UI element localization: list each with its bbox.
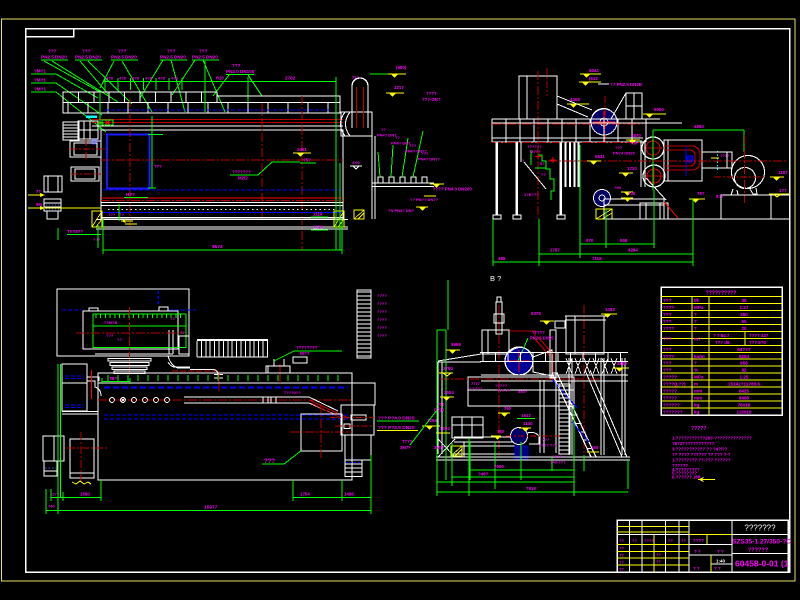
svg-text:?M?1: ?M?1 [34,78,46,83]
svg-text:?? ???? ?????? ?? ??? ?-?: ?? ???? ?????? ?? ??? ?-? [672,452,731,457]
svg-text:9050: 9050 [654,107,664,112]
svg-text:??? d8: ??? d8 [715,340,730,345]
svg-text:4284: 4284 [628,248,638,253]
svg-text:92: 92 [741,368,747,373]
svg-text:1.???????????26?-?????????????: 1.???????????26?-?????????????? [672,436,752,441]
svg-text:mm: mm [694,389,702,394]
svg-text:???: ??? [663,319,672,324]
svg-text:????: ???? [426,91,437,96]
svg-text:1754: 1754 [300,492,310,497]
svg-text:8425: 8425 [739,389,750,394]
svg-text:?: ? [694,312,697,317]
svg-text:4?8: 4?8 [171,76,179,81]
svg-text:5254: 5254 [739,354,750,359]
svg-text:????: ???? [663,326,674,331]
svg-text:?? ???: ?? ??? [469,386,483,391]
svg-text:??: ?? [681,538,686,543]
svg-text:???: ??? [663,298,672,303]
svg-text:??: ?? [656,552,661,557]
svg-text:???: ??? [82,49,91,54]
svg-text:1486: 1486 [344,492,354,497]
svg-text:???: ??? [663,368,672,373]
svg-text:?M?1: ?M?1 [34,87,46,92]
svg-text:PN2.5 DN20: PN2.5 DN20 [75,55,101,60]
svg-text:3.??????????? ?? ?4?/??: 3.??????????? ?? ?4?/?? [672,447,728,452]
svg-text:3217: 3217 [394,85,404,90]
svg-text:1612: 1612 [521,413,531,418]
svg-text:?5?: ?5? [303,158,311,163]
svg-text:76?: 76? [697,191,705,196]
svg-text:mm: mm [694,396,702,401]
svg-text:7?M?B: 7?M?B [104,320,117,325]
svg-text:5042: 5042 [589,68,599,73]
svg-text:1.????????.??-??? ??????: 1.????????.??-??? ?????? [672,458,731,463]
svg-text:760: 760 [497,429,505,434]
svg-text:???: ??? [106,333,114,338]
svg-text:4?8: 4?8 [158,76,166,81]
svg-text:8488: 8488 [739,396,750,401]
svg-text:?????: ????? [663,396,677,401]
svg-text:???: ??? [663,312,672,317]
svg-text:???: ??? [232,63,241,68]
svg-text:?90: ?90 [614,185,622,190]
svg-text:??????: ?????? [663,403,680,408]
svg-text:?6?2??????????7?.: ?6?2??????????7?. [672,441,715,446]
svg-text:350: 350 [740,312,748,317]
svg-text:15977: 15977 [204,505,218,511]
svg-text:1??: 1?? [779,188,787,193]
svg-text:2??: 2?? [52,492,60,497]
svg-text:3850: 3850 [617,361,627,366]
svg-text:TY?8??: TY?8?? [67,229,83,234]
svg-text:7?: 7? [36,189,41,194]
svg-text:??: ?? [119,212,124,217]
svg-text:(612: (612 [589,76,598,81]
svg-text:?M?1: ?M?1 [34,69,46,74]
svg-text:?58: ?58 [630,141,638,146]
svg-text:??: ?? [619,560,624,565]
svg-text:908: 908 [620,238,628,243]
svg-text:?????: ????? [663,375,677,380]
svg-text:3M7?: 3M7? [434,445,445,450]
svg-text:?46?: ?46? [478,472,489,477]
svg-text:??: ?? [170,316,175,321]
svg-text:11?8: 11?8 [313,225,323,230]
svg-text:SZS35-1.27/350-?C: SZS35-1.27/350-?C [732,539,791,546]
svg-text:? ?: ? ? [694,549,701,554]
svg-text:7818: 7818 [526,486,536,491]
svg-text:8??: 8?? [716,194,724,199]
svg-text:???: ??? [542,437,550,442]
svg-text:???: ??? [118,49,127,54]
svg-text:7??? PN4.0 DN200: 7??? PN4.0 DN200 [433,187,472,192]
svg-text:?: ? [694,361,697,366]
svg-text:M???: M??? [530,149,541,154]
svg-text:kg: kg [694,403,700,408]
svg-text:??: ?? [619,553,624,558]
svg-text:???: ??? [154,164,162,169]
svg-text:78018: 78018 [738,403,751,408]
svg-text:4?8: 4?8 [106,76,114,81]
svg-text:????: ???? [552,454,562,459]
svg-text:60458-0-01 (1: 60458-0-01 (1 [735,559,789,569]
svg-text:35: 35 [741,298,747,303]
svg-text:???? ???: ???? ??? [539,443,558,448]
svg-text:???: ??? [663,347,672,352]
svg-text:PN2.5 DN20: PN2.5 DN20 [111,55,137,60]
svg-text:??0: ??0 [437,402,445,407]
svg-text:1?E???: 1?E??? [524,192,539,197]
svg-text:m?: m? [694,336,701,341]
svg-text:MPa: MPa [694,375,704,380]
svg-text:???: ??? [663,361,672,366]
svg-text:PN2.5 DN20: PN2.5 DN20 [41,55,67,60]
svg-text:?N PN4? DN?: ?N PN4? DN? [388,208,415,213]
svg-text:?? PN2.5 DN2B: ?? PN2.5 DN2B [610,82,642,87]
svg-text:PN2.0 DN100: PN2.0 DN100 [226,69,255,74]
svg-text:PN4? DN??: PN4? DN?? [418,157,441,162]
svg-text:5958: 5958 [451,342,461,347]
svg-text:?????: ????? [532,330,545,335]
svg-text:????: ???? [377,293,387,298]
svg-text:1:40: 1:40 [716,559,726,564]
svg-text:????: ???? [377,333,387,338]
svg-text:? ?: ? ? [714,566,721,571]
svg-text:??: ?? [632,538,637,543]
svg-text:???: ??? [48,49,57,54]
svg-text:??: ?? [541,172,546,177]
svg-text:???: ??? [167,49,176,54]
svg-text:???: ??? [409,143,417,148]
svg-text:?????: ????? [691,426,706,432]
svg-text:t/h: t/h [694,298,700,303]
svg-text:??: ?? [180,330,185,335]
svg-text:??????: ?????? [748,548,769,554]
svg-text:1140: 1140 [523,421,533,426]
svg-text:5531: 5531 [595,154,605,159]
svg-text:?? PN?? DN??: ?? PN?? DN?? [410,197,439,202]
svg-text:3M7?: 3M7? [400,445,411,450]
svg-text:1590: 1590 [80,492,90,497]
svg-text:740: 740 [48,504,55,509]
svg-text:MPa: MPa [694,305,704,310]
svg-text:??: ?? [619,538,624,543]
svg-text:????(L??): ????(L??) [663,382,686,387]
svg-text:kg/m: kg/m [694,354,705,359]
svg-text:??????????: ?????????? [706,291,737,297]
svg-text:(950): (950) [396,65,407,70]
svg-text:??: ?? [381,127,386,132]
svg-text:7590: 7590 [494,464,504,469]
svg-text:m: m [694,382,698,387]
svg-text:? ? 84.7: ? ? 84.7 [713,333,730,338]
svg-text:118018: 118018 [736,410,752,415]
svg-text:R20: R20 [216,76,224,81]
svg-text:H??: H?? [126,192,135,197]
svg-text:1082: 1082 [605,307,615,312]
svg-text:4.00: 4.00 [352,160,361,165]
svg-text:20: 20 [741,326,747,331]
svg-text:3504: 3504 [444,390,454,395]
svg-text:??: ?? [619,567,624,572]
svg-text:PN?4 DN25: PN?4 DN25 [613,151,635,156]
svg-text:???: ??? [108,212,116,217]
svg-text:4850: 4850 [694,124,704,129]
svg-text:1157: 1157 [778,170,788,175]
svg-text:???: ??? [93,237,101,242]
svg-text:??: ?? [668,538,673,543]
svg-text:4?8: 4?8 [145,76,153,81]
svg-text:64???: 64??? [737,347,751,352]
svg-text:????: ???? [377,301,387,306]
svg-text:5?: 5? [540,161,545,166]
svg-text:????: ???? [644,538,654,543]
svg-text:???-DN?: ???-DN? [422,97,441,102]
svg-text:488: 488 [498,256,506,261]
svg-text:????: ???? [663,305,674,310]
svg-text:15142?11?85.6: 15142?11?85.6 [728,382,761,387]
svg-text:????: ???? [377,317,387,322]
svg-text:870: 870 [586,238,594,243]
svg-text:50: 50 [741,319,747,324]
svg-text:PN2.5 DN20: PN2.5 DN20 [160,55,186,60]
svg-text:???: ??? [421,151,429,156]
svg-text:1119: 1119 [313,212,323,217]
svg-text:D?20: D?20 [434,408,445,413]
svg-text:??? 5?0: ??? 5?0 [749,340,766,345]
svg-text:3870: 3870 [631,133,641,138]
svg-text:760: 760 [504,406,512,411]
svg-text:????: ???? [377,309,387,314]
svg-text:PN2.5 DN20: PN2.5 DN20 [192,55,218,60]
svg-text:5378: 5378 [531,311,541,316]
svg-text:??: ?? [656,559,661,564]
svg-text:2702: 2702 [285,76,296,81]
svg-text:?: ? [694,319,697,324]
svg-text:9M: 9M [36,202,42,207]
svg-text:958: 958 [740,361,748,366]
svg-text:3780: 3780 [443,366,453,371]
svg-text:4?8: 4?8 [132,76,140,81]
svg-text:????????: ???????? [296,345,318,350]
svg-text:1.27: 1.27 [740,305,749,310]
svg-text:???????: ??????? [663,410,683,415]
svg-text:?????: ????? [663,389,677,394]
svg-text:kg: kg [694,410,700,415]
svg-text:350?: 350? [518,389,528,394]
svg-text:??? ??: ??? ?? [497,388,511,393]
svg-text:W??: W?? [300,351,310,356]
svg-text:???????: ??????? [232,170,251,175]
svg-text:??: ?? [619,546,624,551]
svg-text:%: % [694,368,698,373]
svg-text:????: ???? [377,325,387,330]
svg-text:???: ??? [199,49,208,54]
svg-text:??: ?? [117,337,122,342]
svg-text:1710: 1710 [627,166,637,171]
svg-text:????: ???? [693,538,704,543]
svg-text:??: ?? [395,135,400,140]
svg-text:M2/2: M2/2 [238,176,248,181]
svg-text:??1?: ??1? [720,153,730,158]
svg-text:? ?: ? ? [693,566,700,571]
svg-text:4408: 4408 [570,97,580,102]
svg-text:1.25: 1.25 [740,375,749,380]
svg-text:?43-???: ?43-??? [550,460,566,465]
svg-text:2461: 2461 [297,147,307,152]
svg-text:7???0??: 7???0?? [284,390,301,395]
svg-text:? ?: ? ? [717,549,724,554]
svg-text:????: ???? [663,354,674,359]
svg-text:???? 437: ???? 437 [749,333,769,338]
svg-text:???????: ??????? [744,524,776,533]
svg-text:?: ? [694,326,697,331]
svg-text:8674: 8674 [212,244,223,250]
svg-text:6.?????? 168: 6.?????? 168 [672,475,701,480]
svg-text:B ?: B ? [490,274,501,283]
svg-text:???: ??? [663,336,672,341]
svg-text:1294: 1294 [440,426,450,431]
svg-text:4?8: 4?8 [119,76,127,81]
svg-text:730: 730 [628,191,636,196]
svg-text:PN2.5 DN25: PN2.5 DN25 [530,336,554,341]
svg-text:7118: 7118 [592,256,602,261]
svg-text:1787: 1787 [550,248,560,253]
svg-text:???: ??? [615,145,623,150]
svg-text:150: 150 [591,445,599,450]
svg-text:TB?: TB? [109,376,118,381]
